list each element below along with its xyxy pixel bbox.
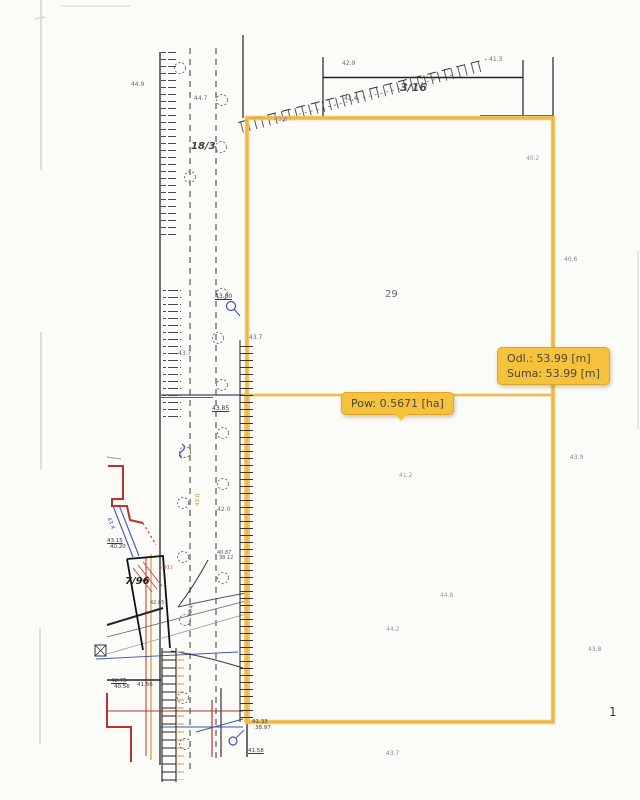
- tree-symbol: [213, 333, 224, 344]
- tree-symbol: [178, 552, 189, 563]
- tooltip-pointer-icon: [394, 413, 408, 421]
- area-tooltip: Pow: 0.5671 [ha]: [341, 392, 454, 415]
- tree-symbol: [218, 479, 229, 490]
- map-viewport[interactable]: 44.944.718/33/1642.941.342.443.640.240.6…: [0, 0, 640, 800]
- sum-readout: Suma: 53.99 [m]: [507, 366, 600, 381]
- tree-symbol: [217, 380, 228, 391]
- top-road-lines: [243, 35, 553, 118]
- boundary-comb: [240, 340, 253, 722]
- tree-symbol: [218, 573, 229, 584]
- tree-symbol: [217, 289, 228, 300]
- cadastral-map-canvas: [0, 0, 640, 800]
- tree-symbol: [216, 142, 227, 153]
- tree-symbol: [218, 428, 229, 439]
- tree-symbol: [180, 615, 191, 626]
- tree-symbol: [217, 95, 228, 106]
- tree-symbol: [178, 498, 189, 509]
- slope-hatch-band: [238, 59, 489, 135]
- measurement-tooltip: Odl.: 53.99 [m] Suma: 53.99 [m]: [497, 347, 610, 385]
- distance-readout: Odl.: 53.99 [m]: [507, 351, 600, 366]
- tree-symbol: [175, 63, 186, 74]
- area-readout: Pow: 0.5671 [ha]: [351, 397, 444, 410]
- scanned-map-page: { "tooltips": { "distance": {"line1": "O…: [0, 0, 640, 800]
- tree-symbols: [175, 63, 229, 750]
